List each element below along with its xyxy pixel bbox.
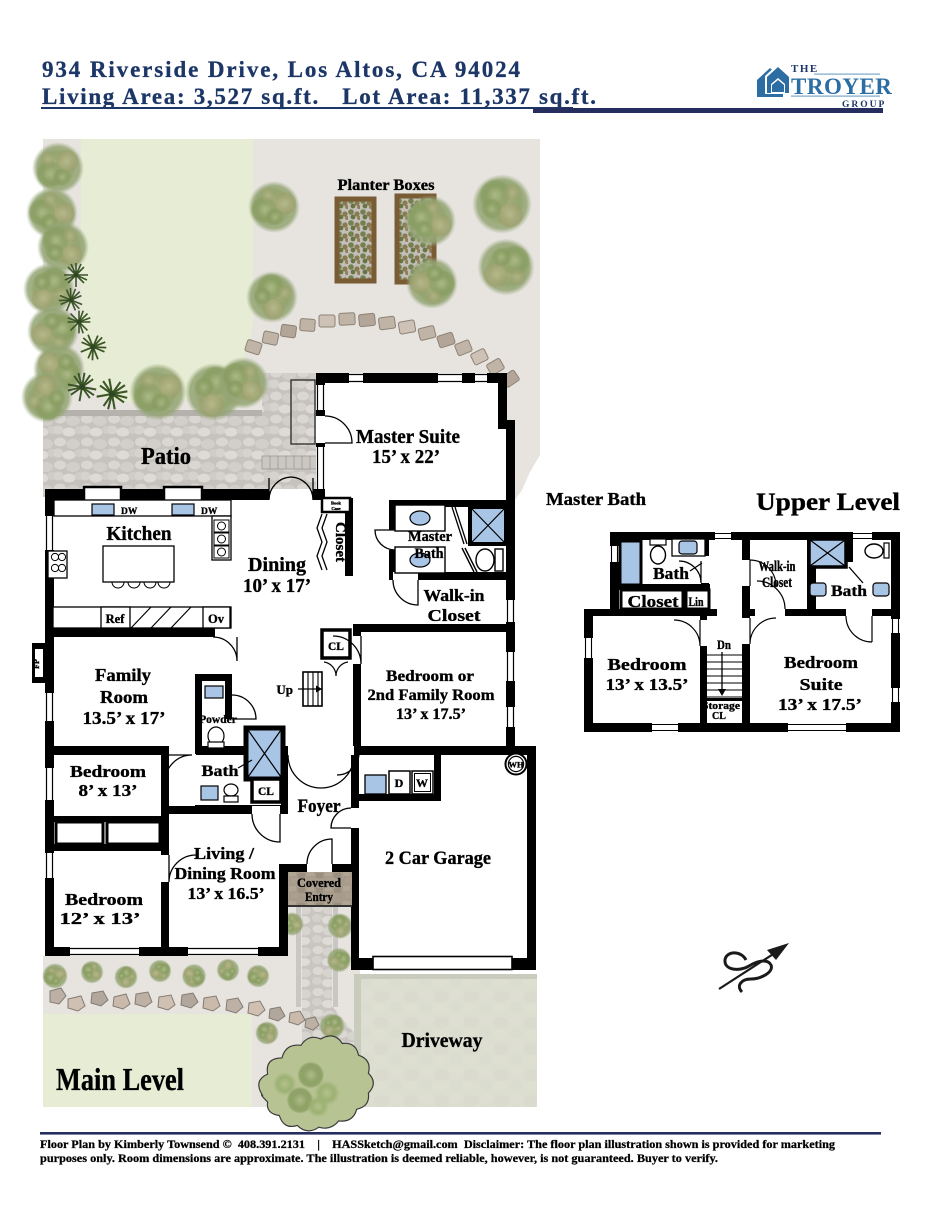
svg-text:2 Car Garage: 2 Car Garage (385, 848, 491, 869)
svg-text:Covered: Covered (297, 876, 341, 890)
svg-text:Ref: Ref (106, 612, 126, 626)
svg-text:DW: DW (201, 507, 218, 517)
svg-text:Room: Room (100, 687, 148, 707)
svg-text:Dining: Dining (248, 554, 306, 576)
svg-text:Master Suite: Master Suite (356, 426, 460, 448)
svg-text:13’ x 17.5’: 13’ x 17.5’ (396, 706, 466, 723)
svg-text:TROYER: TROYER (791, 74, 892, 99)
svg-text:Book: Book (331, 501, 342, 506)
svg-text:Suite: Suite (800, 675, 844, 694)
svg-text:Bedroom: Bedroom (608, 655, 687, 674)
svg-text:Living Area: 3,527 sq.ft. Lo: Living Area: 3,527 sq.ft. Lot Area: 11,3… (42, 84, 596, 109)
svg-text:10’ x 17’: 10’ x 17’ (243, 575, 311, 597)
svg-text:W: W (416, 776, 428, 790)
svg-text:FP: FP (32, 659, 41, 669)
svg-text:Lin: Lin (689, 595, 704, 609)
svg-text:Bedroom: Bedroom (784, 653, 858, 672)
svg-text:Bedroom or: Bedroom or (386, 668, 474, 685)
svg-text:Bath: Bath (653, 564, 690, 583)
svg-text:Main Level: Main Level (56, 1061, 184, 1097)
svg-text:Bath: Bath (831, 583, 867, 600)
svg-text:purposes only. Room dimensions: purposes only. Room dimensions are appro… (40, 1153, 718, 1165)
svg-text:Case: Case (331, 506, 340, 511)
svg-text:Patio: Patio (141, 444, 191, 470)
svg-text:CL: CL (258, 786, 274, 798)
svg-text:Closet: Closet (332, 522, 348, 562)
svg-text:Bath: Bath (415, 546, 445, 562)
svg-text:12’ x 13’: 12’ x 13’ (60, 909, 141, 928)
svg-text:CL: CL (328, 641, 344, 653)
svg-text:13’ x 13.5’: 13’ x 13.5’ (606, 675, 689, 694)
svg-text:WH: WH (508, 760, 524, 770)
svg-text:GROUP: GROUP (842, 100, 886, 110)
svg-text:Driveway: Driveway (402, 1028, 483, 1052)
svg-text:13’ x 17.5’: 13’ x 17.5’ (778, 695, 862, 714)
svg-text:8’ x 13’: 8’ x 13’ (79, 781, 138, 800)
svg-text:Walk-in: Walk-in (759, 559, 796, 575)
svg-text:Dining Room: Dining Room (175, 864, 276, 883)
svg-text:D: D (395, 776, 404, 790)
svg-text:Foyer: Foyer (298, 796, 342, 817)
svg-text:Living /: Living / (194, 844, 254, 863)
svg-text:Closet: Closet (428, 606, 481, 625)
svg-text:Bath: Bath (202, 763, 239, 780)
svg-text:Family: Family (95, 665, 151, 685)
svg-text:15’ x 22’: 15’ x 22’ (372, 446, 440, 468)
svg-text:Ov: Ov (208, 612, 225, 626)
svg-text:Bedroom: Bedroom (65, 890, 143, 909)
svg-text:934 Riverside Drive, Los Altos: 934 Riverside Drive, Los Altos, CA 94024 (42, 57, 521, 82)
svg-text:Closet: Closet (762, 575, 792, 591)
svg-text:Entry: Entry (305, 890, 334, 904)
svg-text:Kitchen: Kitchen (107, 523, 172, 545)
svg-text:CL: CL (712, 710, 726, 722)
svg-text:Master: Master (408, 529, 452, 545)
svg-text:2nd Family Room: 2nd Family Room (368, 687, 496, 704)
svg-text:Closet: Closet (628, 592, 679, 611)
svg-text:Planter Boxes: Planter Boxes (338, 177, 435, 194)
svg-text:Floor Plan by Kimberly Townsen: Floor Plan by Kimberly Townsend © 408.39… (40, 1139, 835, 1151)
svg-text:Dn: Dn (717, 637, 732, 652)
svg-text:Master Bath: Master Bath (546, 489, 646, 509)
svg-text:13’ x 16.5’: 13’ x 16.5’ (188, 884, 265, 903)
svg-text:Bedroom: Bedroom (70, 762, 146, 781)
svg-text:Up: Up (276, 682, 293, 697)
svg-text:Upper Level: Upper Level (756, 487, 900, 516)
svg-text:Powder: Powder (199, 714, 237, 726)
svg-text:13.5’ x 17’: 13.5’ x 17’ (83, 708, 166, 728)
svg-text:DW: DW (121, 507, 138, 517)
svg-text:Walk-in: Walk-in (424, 586, 486, 605)
